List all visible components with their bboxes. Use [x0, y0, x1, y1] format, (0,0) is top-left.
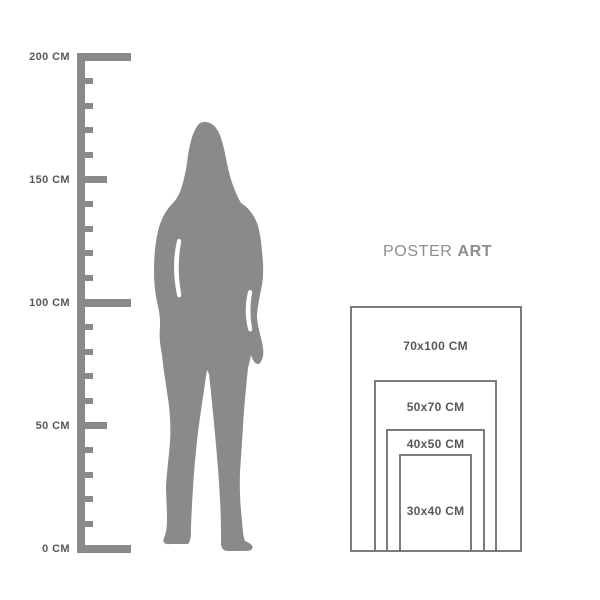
- size-rect-label: 70x100 CM: [350, 338, 522, 354]
- poster-size-chart: 70x100 CM50x70 CM40x50 CM30x40 CM: [0, 0, 600, 600]
- size-rect-label: 50x70 CM: [374, 399, 497, 415]
- size-rect-label: 40x50 CM: [386, 436, 484, 452]
- poster-size-guide: 200 CM150 CM100 CM50 CM0 CM POSTERART 70…: [0, 0, 600, 600]
- size-rect-label: 30x40 CM: [399, 503, 473, 519]
